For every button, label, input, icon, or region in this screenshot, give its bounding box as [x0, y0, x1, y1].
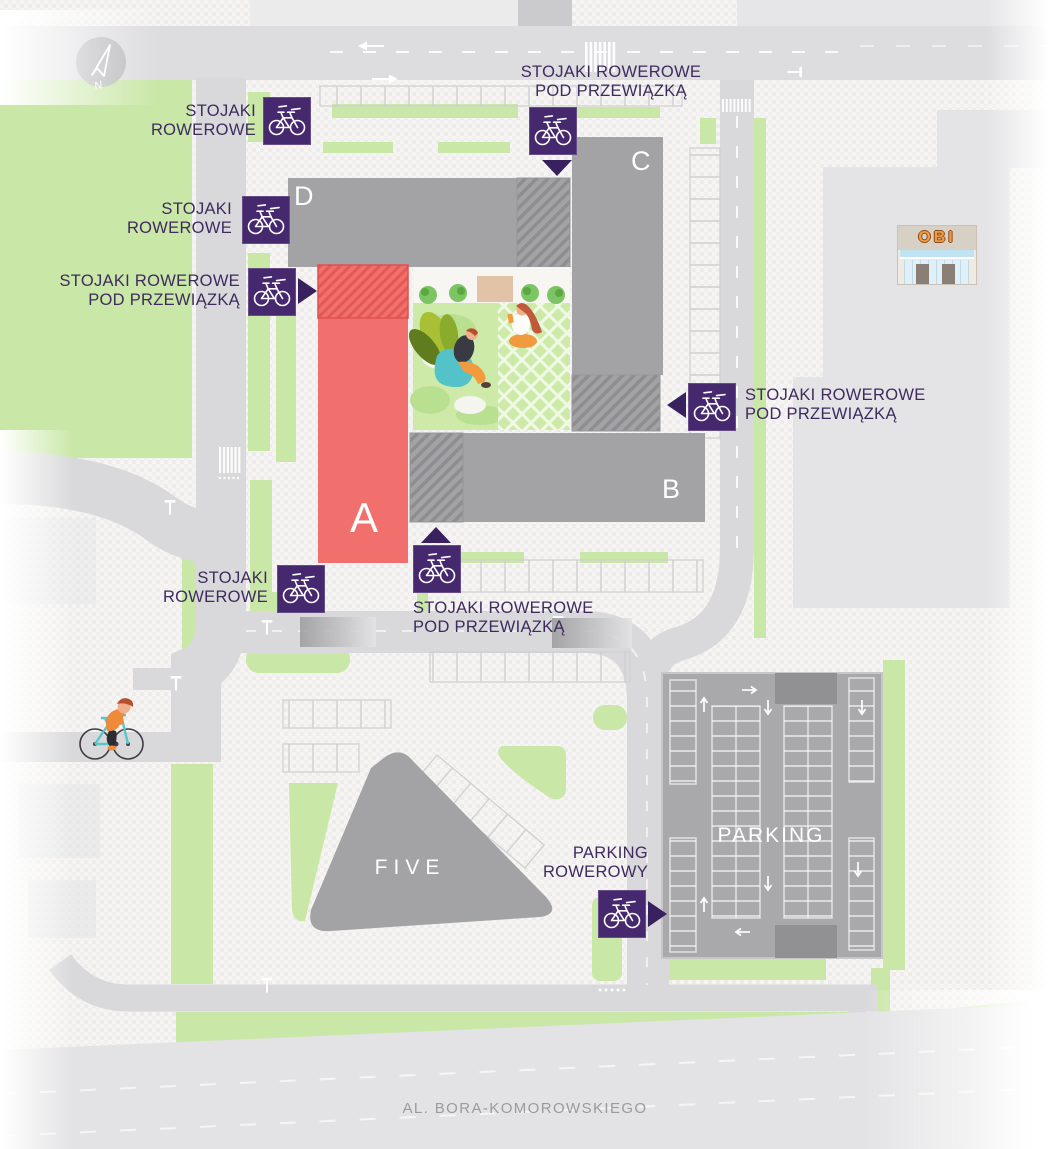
- bicycle-icon: [529, 107, 577, 155]
- obi-awning: [900, 250, 974, 259]
- bicycle-icon: [688, 383, 736, 431]
- bicycle-icon: [598, 890, 646, 938]
- bicycle-icon: [242, 196, 290, 244]
- label-bike-racks-7: STOJAKI ROWEROWEPOD PRZEWIĄZKĄ: [413, 599, 623, 636]
- label-bike-racks-2: STOJAKIROWEROWE: [82, 200, 232, 237]
- building-five-label: FIVE: [330, 856, 490, 880]
- marker-bike-parking-8[interactable]: [598, 890, 646, 938]
- marker-bike-racks-3[interactable]: [248, 268, 296, 316]
- marker-bike-racks-7[interactable]: [413, 545, 461, 593]
- building-b-label: B: [662, 474, 680, 505]
- obi-store-sign: OBI: [898, 226, 976, 284]
- street-name-label: AL. BORA-KOMOROWSKIEGO: [25, 1100, 1025, 1117]
- marker-bike-racks-2[interactable]: [242, 196, 290, 244]
- obi-door: [942, 264, 955, 284]
- building-d: [288, 178, 570, 267]
- marker-arrow-right-icon: [648, 901, 667, 927]
- courtyard-illustration: [403, 267, 570, 430]
- obi-glass: [904, 260, 970, 284]
- marker-bike-racks-4[interactable]: [529, 107, 577, 155]
- bicycle-icon: [413, 545, 461, 593]
- bicycle-icon: [248, 268, 296, 316]
- label-bike-racks-1: STOJAKIROWEROWE: [106, 102, 256, 139]
- parking-lot-label: PARKING: [662, 824, 880, 848]
- building-c: [572, 137, 663, 431]
- marker-arrow-right-icon: [298, 278, 317, 304]
- obi-storefront: [898, 250, 976, 284]
- marker-arrow-down-icon: [542, 160, 572, 176]
- marker-bike-racks-1[interactable]: [263, 97, 311, 145]
- marker-bike-racks-5[interactable]: [688, 383, 736, 431]
- marker-bike-racks-6[interactable]: [277, 565, 325, 613]
- label-bike-racks-3: STOJAKI ROWEROWEPOD PRZEWIĄZKĄ: [48, 272, 240, 309]
- obi-logo: OBI: [898, 226, 976, 250]
- building-d-label: D: [294, 181, 314, 212]
- marker-arrow-up-icon: [421, 527, 451, 543]
- building-a-label: A: [318, 494, 410, 542]
- building-b: [410, 433, 705, 522]
- bicycle-icon: [277, 565, 325, 613]
- label-bike-racks-4: STOJAKI ROWEROWEPOD PRZEWIĄZKĄ: [516, 63, 706, 100]
- label-bike-racks-6: STOJAKIROWEROWE: [118, 569, 268, 606]
- building-c-label: C: [631, 146, 651, 177]
- label-bike-racks-5: STOJAKI ROWEROWEPOD PRZEWIĄZKĄ: [745, 386, 955, 423]
- obi-door: [916, 264, 929, 284]
- site-map: N OBI A B C D FIVE PARKING STOJAKIROWERO…: [0, 0, 1050, 1149]
- marker-arrow-left-icon: [667, 392, 686, 418]
- parking-lot: [662, 673, 882, 958]
- label-bike-parking-8: PARKINGROWEROWY: [498, 844, 648, 881]
- bicycle-icon: [263, 97, 311, 145]
